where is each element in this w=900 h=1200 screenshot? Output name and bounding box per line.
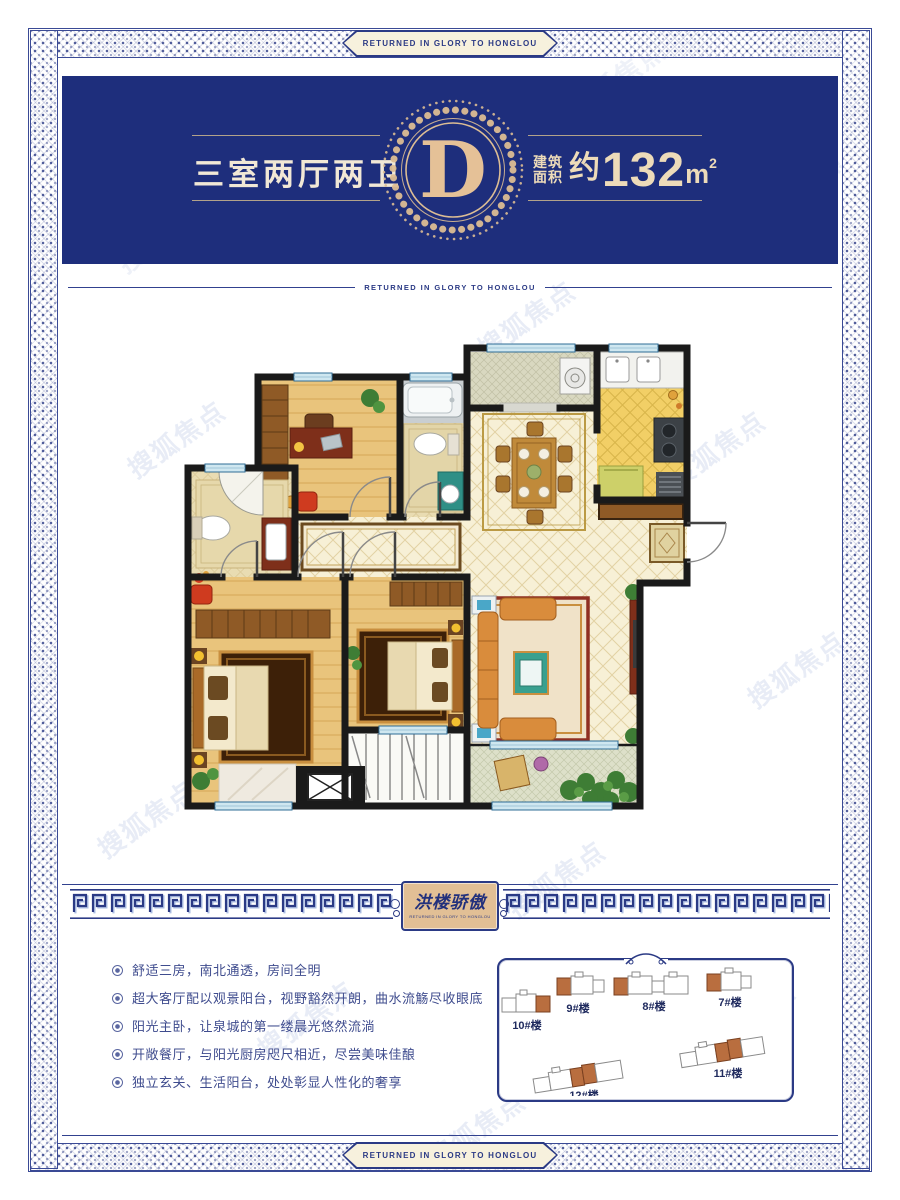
- building-9: [557, 972, 604, 995]
- area-superscript: 2: [709, 155, 717, 171]
- building-8: [614, 972, 688, 995]
- frame-strip-left: [30, 30, 58, 1169]
- bullet-icon: [112, 993, 123, 1004]
- corridor-rug: [302, 524, 460, 570]
- feature-item: 超大客厅配以观景阳台，视野豁然开朗，曲水流觞尽收眼底: [112, 991, 484, 1006]
- motto-text: RETURNED IN GLORY TO HONGLOU: [363, 39, 538, 48]
- feature-item: 独立玄关、生活阳台，处处彰显人性化的奢享: [112, 1075, 484, 1090]
- poster-page: 搜狐焦点 搜狐焦点 搜狐焦点 搜狐焦点 搜狐焦点 搜狐焦点 搜狐焦点 搜狐焦点 …: [0, 0, 900, 1200]
- unit-type-title: 三室两厅两卫: [193, 149, 403, 194]
- building-7: [707, 968, 751, 991]
- building-label: 11#楼: [714, 1066, 743, 1080]
- master-bathroom: [192, 471, 291, 583]
- area-label-line1: 建筑: [533, 155, 563, 170]
- area-figure: 建筑 面积 约 132 m 2: [533, 142, 717, 193]
- building-label: 12#楼: [569, 1088, 598, 1096]
- motto-badge-bottom: RETURNED IN GLORY TO HONGLOU: [342, 1142, 558, 1169]
- band-curl-icon: [393, 910, 400, 917]
- feature-item: 阳光主卧，让泉城的第一缕晨光悠然流淌: [112, 1019, 484, 1034]
- project-seal: 洪楼骄傲 RETURNED IN GLORY TO HONGLOU: [401, 881, 499, 931]
- siteplan-panel: 10#楼 9#楼 8#楼: [497, 958, 794, 1102]
- building-label: 9#楼: [566, 1001, 589, 1015]
- greek-key-strip-left: [70, 889, 393, 919]
- motto-badge-top: RETURNED IN GLORY TO HONGLOU: [342, 30, 558, 57]
- seal-title: 洪楼骄傲: [414, 894, 486, 912]
- feature-item: 舒适三房，南北通透，房间全明: [112, 963, 484, 978]
- header-divider: RETURNED IN GLORY TO HONGLOU: [68, 283, 832, 292]
- building-12: [532, 1057, 623, 1093]
- divider-line: [545, 287, 832, 288]
- divider-line: [68, 287, 355, 288]
- area-approx: 约: [569, 142, 600, 187]
- band-curl-icon: [500, 910, 507, 917]
- feature-item: 开敞餐厅，与阳光厨房咫尺相近，尽尝美味佳酿: [112, 1047, 484, 1062]
- motto-text: RETURNED IN GLORY TO HONGLOU: [363, 1151, 538, 1160]
- feature-list: 舒适三房，南北通透，房间全明 超大客厅配以观景阳台，视野豁然开朗，曲水流觞尽收眼…: [112, 963, 484, 1103]
- floor-plan: [180, 338, 732, 814]
- feature-text: 阳光主卧，让泉城的第一缕晨光悠然流淌: [132, 1019, 375, 1034]
- building-label: 7#楼: [718, 995, 741, 1009]
- building-11: [678, 1033, 764, 1068]
- seal-subtitle: RETURNED IN GLORY TO HONGLOU: [409, 914, 490, 919]
- siteplan-map: 10#楼 9#楼 8#楼: [499, 960, 788, 1096]
- unit-letter: D: [419, 125, 487, 216]
- band-curl-icon: [499, 899, 509, 909]
- header-rule: [528, 200, 702, 201]
- building-10: [502, 990, 550, 1012]
- feature-text: 舒适三房，南北通透，房间全明: [132, 963, 321, 978]
- feature-text: 独立玄关、生活阳台，处处彰显人性化的奢享: [132, 1075, 402, 1090]
- mid-bathroom: [403, 383, 463, 512]
- bullet-icon: [112, 1077, 123, 1088]
- building-label: 10#楼: [512, 1018, 541, 1032]
- feature-text: 开敞餐厅，与阳光厨房咫尺相近，尽尝美味佳酿: [132, 1047, 416, 1062]
- header-band: 三室两厅两卫 D 建筑 面积 约 132 m 2: [62, 76, 838, 264]
- header-rule: [528, 135, 702, 136]
- unit-letter-emblem: D: [373, 94, 533, 246]
- motto-text: RETURNED IN GLORY TO HONGLOU: [364, 283, 536, 292]
- bullet-icon: [112, 1049, 123, 1060]
- header-rule: [192, 135, 380, 136]
- panel-ornament-icon: [624, 951, 668, 967]
- bullet-icon: [112, 1021, 123, 1032]
- building-label: 8#楼: [642, 999, 665, 1013]
- frame-strip-right: [842, 30, 870, 1169]
- area-label-line2: 面积: [533, 170, 563, 185]
- area-unit: m: [685, 159, 709, 190]
- band-curl-icon: [390, 899, 400, 909]
- greek-key-strip-right: [503, 889, 830, 919]
- bullet-icon: [112, 965, 123, 976]
- entry-mat: [650, 524, 684, 562]
- feature-text: 超大客厅配以观景阳台，视野豁然开朗，曲水流觞尽收眼底: [132, 991, 483, 1006]
- area-value: 132: [602, 149, 685, 193]
- rule-below-content: [62, 1135, 838, 1136]
- header-rule: [192, 200, 380, 201]
